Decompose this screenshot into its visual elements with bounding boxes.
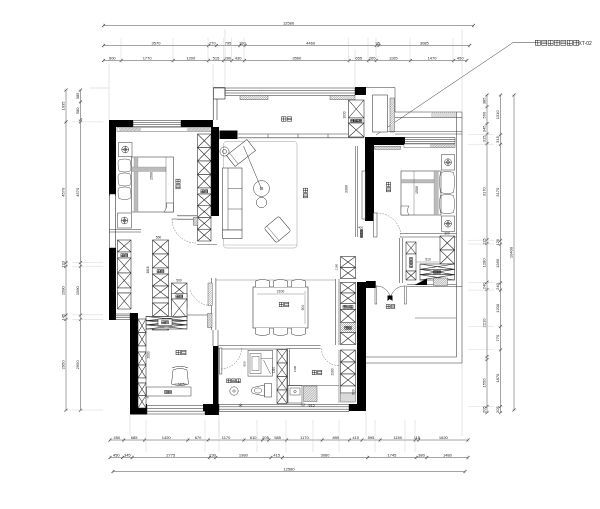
- svg-text:1745: 1745: [387, 452, 397, 457]
- svg-text:1100: 1100: [293, 365, 297, 372]
- svg-text:-615: -615: [307, 403, 314, 407]
- svg-text:1980: 1980: [239, 452, 249, 457]
- svg-text:315: 315: [495, 135, 500, 142]
- svg-text:450: 450: [114, 435, 121, 440]
- svg-text:1580: 1580: [61, 285, 66, 295]
- svg-text:10400: 10400: [509, 246, 514, 258]
- svg-text:1500: 1500: [415, 186, 419, 194]
- svg-text:1165: 1165: [389, 55, 398, 60]
- svg-text:400: 400: [358, 226, 363, 230]
- svg-text:385: 385: [482, 97, 487, 104]
- svg-text:205: 205: [262, 435, 269, 440]
- svg-text:3170: 3170: [482, 186, 487, 196]
- svg-text:1580: 1580: [75, 285, 80, 295]
- svg-text:600: 600: [352, 389, 356, 395]
- svg-text:3170: 3170: [495, 187, 500, 197]
- svg-text:1030: 1030: [343, 111, 347, 118]
- svg-text:2000: 2000: [147, 351, 151, 358]
- svg-text:550: 550: [156, 236, 162, 240]
- svg-text:315: 315: [482, 135, 487, 142]
- svg-text:795: 795: [225, 40, 232, 45]
- svg-text:2950: 2950: [75, 360, 80, 370]
- svg-text:450: 450: [457, 55, 464, 60]
- svg-text:1425: 1425: [177, 383, 184, 387]
- svg-text:900: 900: [242, 361, 246, 366]
- svg-text:900: 900: [301, 305, 305, 311]
- svg-text:1620: 1620: [439, 435, 449, 440]
- svg-text:280: 280: [224, 55, 231, 60]
- svg-text:145: 145: [61, 313, 66, 320]
- svg-text:410: 410: [352, 435, 359, 440]
- svg-text:685: 685: [131, 435, 138, 440]
- svg-text:515: 515: [213, 55, 220, 60]
- svg-text:380: 380: [418, 452, 425, 457]
- svg-text:1816: 1816: [146, 266, 150, 273]
- svg-text:4570: 4570: [61, 187, 66, 197]
- svg-text:2100: 2100: [277, 290, 285, 294]
- svg-text:770: 770: [495, 334, 500, 341]
- svg-text:2210: 2210: [482, 318, 487, 328]
- svg-text:560: 560: [482, 111, 487, 118]
- svg-text:3085: 3085: [420, 40, 430, 45]
- svg-text:1500: 1500: [150, 172, 154, 180]
- svg-text:125: 125: [482, 237, 487, 244]
- svg-text:XT-02: XT-02: [579, 41, 593, 47]
- svg-text:600: 600: [109, 55, 116, 60]
- svg-text:580: 580: [75, 107, 80, 114]
- svg-text:3570: 3570: [152, 40, 162, 45]
- svg-text:230: 230: [209, 452, 216, 457]
- svg-text:895: 895: [333, 435, 340, 440]
- svg-text:595: 595: [368, 435, 375, 440]
- svg-text:1200: 1200: [186, 55, 196, 60]
- svg-text:500: 500: [176, 279, 182, 283]
- svg-text:1180: 1180: [335, 263, 339, 270]
- svg-text:1480: 1480: [443, 452, 453, 457]
- svg-text:300: 300: [444, 232, 450, 236]
- svg-text:270: 270: [209, 40, 216, 45]
- svg-text:1420: 1420: [162, 435, 172, 440]
- svg-text:3060: 3060: [321, 452, 331, 457]
- svg-text:1110: 1110: [272, 366, 276, 373]
- svg-text:115: 115: [414, 435, 421, 440]
- svg-text:385: 385: [75, 92, 80, 99]
- svg-text:4460: 4460: [306, 40, 316, 45]
- svg-text:180: 180: [239, 40, 246, 45]
- svg-text:2950: 2950: [61, 360, 66, 370]
- svg-text:1170: 1170: [222, 435, 231, 440]
- svg-text:1150: 1150: [393, 435, 402, 440]
- svg-text:205: 205: [482, 405, 487, 412]
- svg-text:240: 240: [495, 282, 500, 289]
- svg-text:12580: 12580: [283, 466, 295, 471]
- svg-text:12580: 12580: [283, 20, 295, 25]
- svg-text:3560: 3560: [292, 55, 302, 60]
- svg-text:2775: 2775: [166, 452, 176, 457]
- svg-text:1280: 1280: [482, 258, 487, 268]
- svg-text:265: 265: [369, 55, 376, 60]
- svg-text:1280: 1280: [495, 258, 500, 268]
- svg-text:1770: 1770: [143, 55, 153, 60]
- svg-text:415: 415: [273, 452, 280, 457]
- svg-text:345: 345: [482, 125, 487, 132]
- svg-text:510: 510: [425, 258, 431, 262]
- svg-text:1035: 1035: [61, 101, 66, 111]
- svg-text:120: 120: [61, 260, 66, 267]
- svg-text:1870: 1870: [495, 373, 500, 383]
- svg-text:1470: 1470: [428, 55, 438, 60]
- svg-text:610: 610: [250, 435, 257, 440]
- svg-text:125: 125: [495, 238, 500, 245]
- svg-text:205: 205: [495, 405, 500, 412]
- svg-text:1170: 1170: [300, 435, 309, 440]
- svg-text:345: 345: [124, 452, 131, 457]
- svg-text:4570: 4570: [75, 187, 80, 197]
- svg-text:430: 430: [235, 55, 242, 60]
- svg-text:450: 450: [113, 452, 120, 457]
- svg-text:2900: 2900: [331, 368, 335, 375]
- svg-text:1550: 1550: [482, 378, 487, 388]
- svg-text:670: 670: [195, 435, 202, 440]
- svg-text:3300: 3300: [345, 185, 349, 193]
- svg-text:585: 585: [274, 435, 281, 440]
- svg-text:1200: 1200: [495, 303, 500, 313]
- svg-text:1310: 1310: [495, 110, 500, 120]
- svg-text:655: 655: [355, 55, 362, 60]
